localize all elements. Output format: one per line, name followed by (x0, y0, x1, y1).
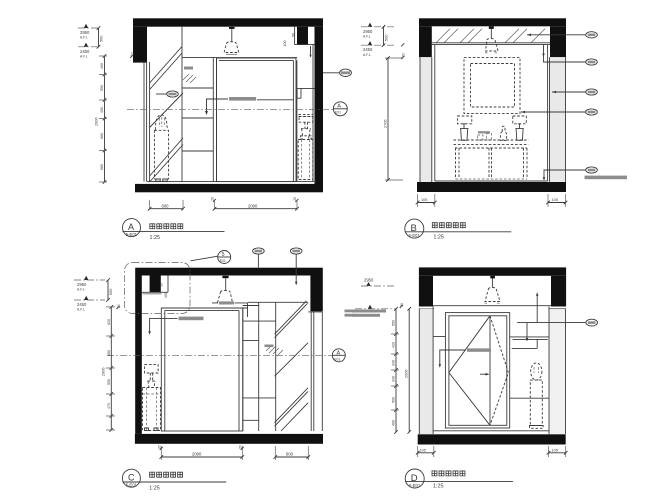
svg-text:2706: 2706 (384, 120, 388, 128)
svg-text:1:25: 1:25 (433, 235, 444, 241)
svg-text:2090: 2090 (192, 452, 202, 457)
svg-text:C: C (128, 473, 135, 483)
svg-text:1:25: 1:25 (433, 484, 444, 490)
svg-text:5-E01: 5-E01 (409, 233, 421, 238)
svg-text:340: 340 (392, 376, 396, 382)
svg-text:550: 550 (392, 320, 396, 326)
svg-text:550: 550 (107, 379, 111, 385)
svg-text:105: 105 (421, 198, 427, 202)
svg-text:5-E01: 5-E01 (126, 232, 138, 237)
svg-text:340: 340 (392, 360, 396, 366)
svg-text:5-E01: 5-E01 (409, 483, 421, 488)
svg-text:20: 20 (157, 445, 161, 449)
svg-text:20: 20 (402, 53, 406, 57)
svg-text:2450: 2450 (77, 302, 87, 307)
svg-text:100: 100 (283, 41, 287, 47)
svg-text:20: 20 (211, 197, 215, 201)
svg-text:620: 620 (107, 319, 111, 325)
svg-text:2950: 2950 (80, 30, 90, 35)
svg-text:20: 20 (238, 445, 242, 449)
svg-text:680: 680 (100, 133, 104, 139)
svg-text:5-E01: 5-E01 (126, 483, 138, 488)
svg-text:680: 680 (100, 164, 104, 170)
svg-text:20: 20 (117, 304, 121, 308)
svg-text:100: 100 (164, 292, 168, 298)
svg-text:A.F.L: A.F.L (363, 34, 371, 38)
svg-text:2950: 2950 (77, 282, 87, 287)
svg-text:E01: E01 (335, 111, 341, 115)
svg-text:A.F.L: A.F.L (363, 53, 371, 57)
svg-text:A: A (337, 350, 341, 356)
svg-text:500: 500 (392, 397, 396, 403)
svg-text:600: 600 (286, 452, 294, 457)
svg-text:A.F.L: A.F.L (77, 288, 85, 292)
svg-text:400: 400 (100, 107, 104, 113)
svg-text:A: A (128, 222, 134, 232)
svg-text:680: 680 (107, 350, 111, 356)
svg-text:1:25: 1:25 (149, 485, 160, 491)
svg-text:460: 460 (392, 420, 396, 426)
svg-text:400: 400 (100, 63, 104, 69)
svg-text:A.F.L: A.F.L (77, 308, 85, 312)
svg-text:1:25: 1:25 (150, 235, 161, 241)
svg-text:500: 500 (109, 289, 113, 295)
svg-text:105: 105 (552, 448, 558, 452)
svg-text:50: 50 (291, 33, 295, 37)
svg-text:20: 20 (293, 197, 297, 201)
svg-text:2950: 2950 (363, 29, 373, 34)
svg-text:2906: 2906 (95, 118, 99, 126)
svg-text:105: 105 (420, 448, 426, 452)
svg-text:420: 420 (392, 342, 396, 348)
svg-text:A: A (337, 104, 341, 110)
svg-text:50: 50 (160, 283, 164, 287)
svg-text:E01: E01 (220, 259, 226, 263)
svg-text:500: 500 (385, 35, 389, 41)
svg-text:2906: 2906 (102, 368, 106, 376)
svg-text:2950: 2950 (364, 277, 374, 282)
svg-text:A.F.L: A.F.L (80, 54, 88, 58)
svg-text:2450: 2450 (80, 49, 90, 54)
svg-text:20: 20 (400, 303, 404, 307)
svg-text:A.F.L: A.F.L (80, 36, 88, 40)
svg-text:600: 600 (162, 203, 170, 208)
svg-text:E01: E01 (334, 357, 340, 361)
svg-text:500: 500 (100, 36, 104, 42)
svg-text:5: 5 (222, 252, 225, 258)
svg-text:550: 550 (100, 85, 104, 91)
svg-text:20: 20 (131, 52, 135, 56)
svg-text:2090: 2090 (248, 203, 258, 208)
svg-text:2450: 2450 (363, 47, 373, 52)
svg-text:105: 105 (552, 198, 558, 202)
svg-text:470: 470 (107, 403, 111, 409)
svg-text:2906: 2906 (405, 370, 409, 378)
